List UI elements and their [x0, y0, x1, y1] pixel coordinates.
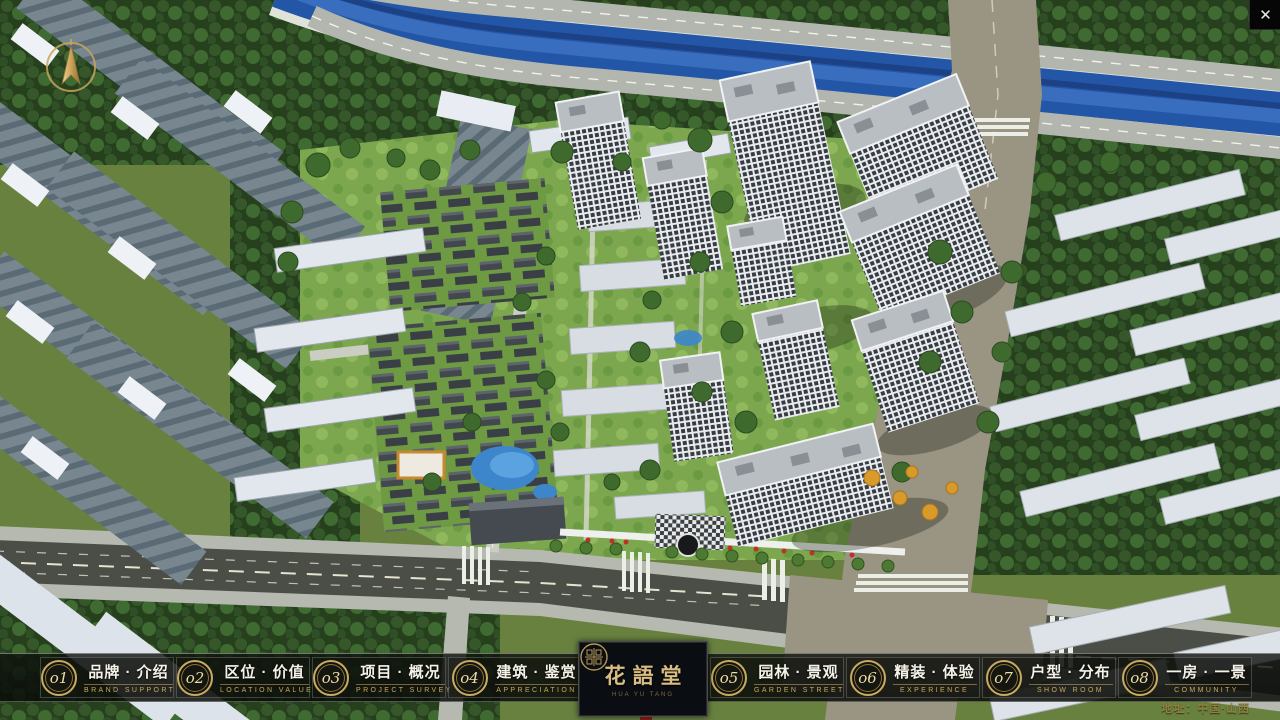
nav-item-location-value[interactable]: o2 区位 · 价值 LOCATION VALUE	[176, 657, 310, 698]
aerial-masterplan-view[interactable]	[0, 0, 1280, 720]
nav-title: 项目 · 概况	[360, 661, 440, 682]
brand-tagline: HUA YU TANG	[612, 692, 674, 698]
nav-badge: o2	[177, 660, 213, 696]
nav-item-garden[interactable]: o5 园林 · 景观 GARDEN STREET	[710, 657, 844, 698]
presentation-window: ✕ o1 品牌 · 介绍 BRAND SUPPORT o2 区位 · 价值 LO…	[0, 0, 1280, 720]
brand-home-panel[interactable]: 花語堂 HUA YU TANG	[578, 641, 708, 717]
nav-subtitle: APPRECIATION	[495, 684, 579, 694]
compass-icon	[42, 38, 100, 96]
nav-title: 区位 · 价值	[224, 661, 304, 682]
nav-item-project-survey[interactable]: o3 项目 · 概况 PROJECT SURVEY	[312, 657, 446, 698]
nav-subtitle: PROJECT SURVEY	[356, 684, 445, 694]
nav-item-floorplans[interactable]: o7 户型 · 分布 SHOW ROOM	[982, 657, 1116, 698]
nav-badge: o7	[986, 660, 1022, 696]
nav-subtitle: LOCATION VALUE	[220, 684, 309, 694]
nav-badge: o3	[313, 660, 349, 696]
brand-name: 花語堂	[598, 660, 689, 690]
nav-title: 户型 · 分布	[1030, 661, 1110, 682]
nav-badge: o6	[850, 660, 886, 696]
nav-subtitle: BRAND SUPPORT	[84, 684, 173, 694]
close-icon: ✕	[1259, 6, 1272, 24]
nav-title: 精装 · 体验	[894, 661, 974, 682]
nav-item-views[interactable]: o8 一房 · 一景 COMMUNITY	[1118, 657, 1252, 698]
nav-title: 园林 · 景观	[758, 661, 838, 682]
nav-badge: o8	[1122, 660, 1158, 696]
nav-badge: o1	[41, 660, 77, 696]
nav-item-architecture[interactable]: o4 建筑 · 鉴赏 APPRECIATION	[448, 657, 582, 698]
brand-seal-icon	[579, 642, 609, 672]
nav-item-experience[interactable]: o6 精装 · 体验 EXPERIENCE	[846, 657, 980, 698]
nav-item-brand-intro[interactable]: o1 品牌 · 介绍 BRAND SUPPORT	[40, 657, 174, 698]
nav-title: 品牌 · 介绍	[88, 661, 168, 682]
nav-subtitle: COMMUNITY	[1165, 684, 1249, 694]
nav-title: 建筑 · 鉴赏	[496, 661, 576, 682]
nav-title: 一房 · 一景	[1166, 661, 1246, 682]
nav-subtitle: GARDEN STREET	[754, 684, 843, 694]
nav-badge: o5	[711, 660, 747, 696]
scene-render	[0, 0, 1280, 720]
nav-subtitle: SHOW ROOM	[1029, 684, 1113, 694]
nav-badge: o4	[452, 660, 488, 696]
nav-subtitle: EXPERIENCE	[893, 684, 977, 694]
close-button[interactable]: ✕	[1249, 0, 1280, 30]
address-text: 地址：中国·山西	[1161, 700, 1250, 716]
